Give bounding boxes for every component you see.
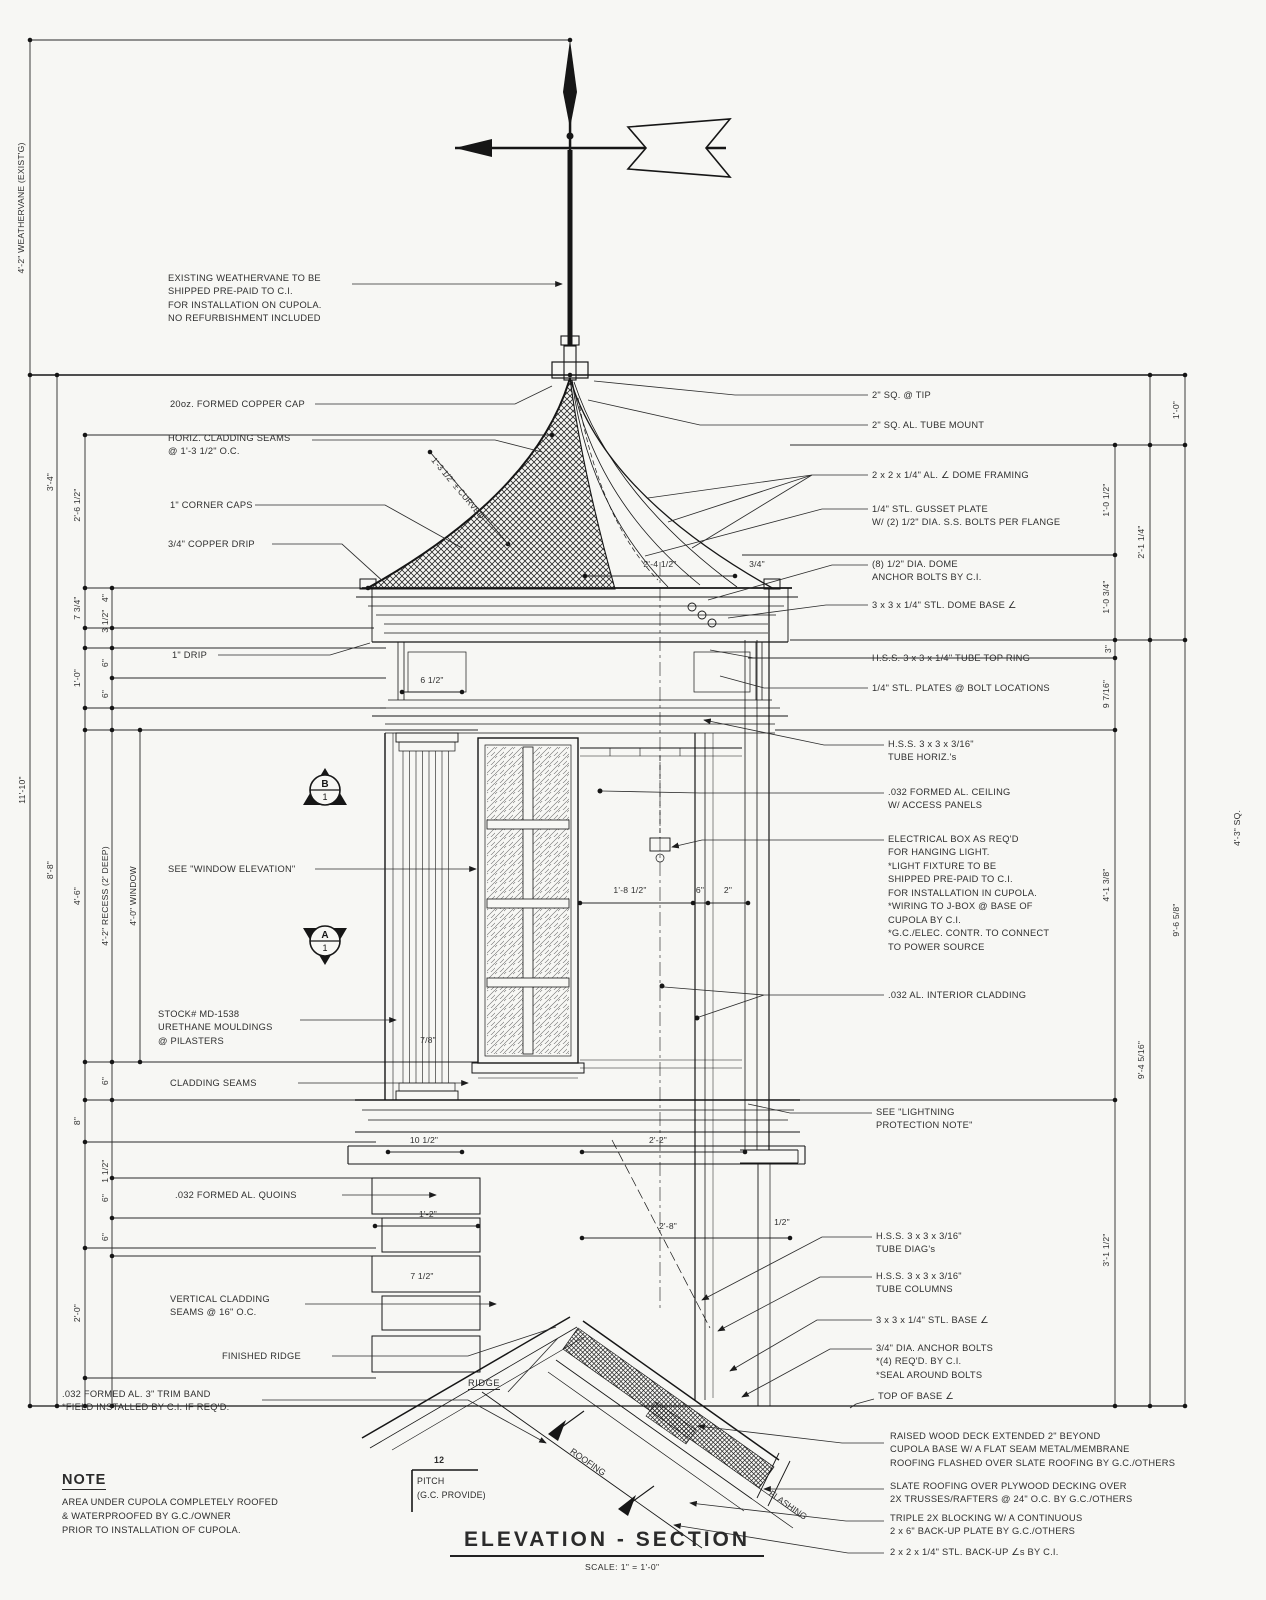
annotation-stl-base-angle: 3 x 3 x 1/4" STL. BASE ∠ [876, 1314, 989, 1327]
roof [362, 1317, 800, 1548]
weathervane-spear-icon [563, 40, 577, 128]
dim-column-width: 6" [696, 885, 704, 895]
dim-frieze-b: 6" [100, 690, 110, 698]
annotation-lightning-note: SEE "LIGHTNINGPROTECTION NOTE" [876, 1106, 973, 1133]
dim-top-ring-zone: 9 7/16" [1101, 680, 1111, 708]
annotation-tube-top-ring: H.S.S. 3 x 3 x 1/4" TUBE TOP RING [872, 652, 1030, 665]
dim-quoin-width: 1'-2" [419, 1209, 437, 1219]
drawing-sheet: B 1 A 1 EXISTING WEATHERVANE TO BESHIPPE… [0, 0, 1266, 1600]
dim-square-note: 4'-3" SQ. [1232, 810, 1242, 846]
annotation-finished-ridge: FINISHED RIDGE [222, 1350, 301, 1363]
dim-frieze: 1'-0" [72, 669, 82, 687]
dimension-dots [28, 38, 1188, 1409]
annotation-dome-base-angle: 3 x 3 x 1/4" STL. DOME BASE ∠ [872, 599, 1016, 612]
svg-text:B: B [321, 779, 328, 790]
dim-quoin-c: 6" [100, 1233, 110, 1241]
annotation-tube-horiz: H.S.S. 3 x 3 x 3/16"TUBE HORIZ.'s [888, 738, 974, 765]
drawing-linework: B 1 A 1 [0, 0, 1266, 1600]
dim-column-height: 9'-4 5/16" [1136, 1041, 1146, 1079]
dim-band-left: 10 1/2" [410, 1135, 438, 1145]
annotation-tube-diags: H.S.S. 3 x 3 x 3/16"TUBE DIAG's [876, 1230, 962, 1257]
annotation-weathervane-note: EXISTING WEATHERVANE TO BESHIPPED PRE-PA… [168, 272, 322, 326]
note-heading: NOTE [62, 1472, 106, 1490]
dim-ledge: 1/2" [774, 1217, 790, 1227]
annotation-interior-cladding: .032 AL. INTERIOR CLADDING [888, 989, 1026, 1002]
section-marker-b: B 1 [303, 768, 347, 805]
dim-quoin-b: 6" [100, 1194, 110, 1202]
dim-base-zone: 3'-1 1/2" [1101, 1233, 1111, 1266]
section-marker-a: A 1 [303, 926, 347, 965]
dim-cornice-a: 4" [100, 594, 110, 602]
dim-dome-base-width: 2'-4 1/2" [643, 559, 676, 569]
dim-overall-left: 11'-10" [17, 776, 27, 803]
dim-body-left: 8'-8" [45, 861, 55, 879]
dim-tip-zone: 1'-0" [1171, 401, 1181, 419]
annotation-copper-cap: 20oz. FORMED COPPER CAP [170, 398, 305, 411]
pitch-provide: (G.C. PROVIDE) [417, 1490, 486, 1500]
note-body: AREA UNDER CUPOLA COMPLETELY ROOFED& WAT… [62, 1496, 278, 1538]
dim-frieze-panel: 6 1/2" [420, 675, 443, 685]
svg-text:A: A [321, 930, 328, 941]
dim-wall-width: 2" [724, 885, 732, 895]
dim-anchor-zone: 1'-0 3/4" [1101, 580, 1111, 613]
dim-interior-width: 1'-8 1/2" [613, 885, 646, 895]
pitch-label: PITCH [417, 1476, 444, 1486]
annotation-triple-blocking: TRIPLE 2X BLOCKING W/ A CONTINUOUS2 x 6"… [890, 1512, 1082, 1539]
annotation-electrical-box: ELECTRICAL BOX AS REQ'DFOR HANGING LIGHT… [888, 833, 1049, 954]
annotation-anchor-bolts: 3/4" DIA. ANCHOR BOLTS*(4) REQ'D. BY C.I… [876, 1342, 993, 1382]
annotation-sq-tip: 2" SQ. @ TIP [872, 389, 931, 402]
annotation-corner-caps: 1" CORNER CAPS [170, 499, 253, 512]
drawing-scale: SCALE: 1" = 1'-0" [585, 1562, 660, 1572]
dim-cornice-b: 3 1/2" [100, 609, 110, 632]
dim-weathervane: 4'-2" WEATHERVANE (EXIST'G) [16, 142, 26, 273]
annotation-vertical-cladding-seams: VERTICAL CLADDINGSEAMS @ 16" O.C. [170, 1293, 270, 1320]
annotation-slate-roofing: SLATE ROOFING OVER PLYWOOD DECKING OVER2… [890, 1480, 1132, 1507]
pilaster-flutes [403, 751, 449, 1083]
dim-cap-to-eave: 2'-6 1/2" [72, 488, 82, 521]
annotation-trim-band: .032 FORMED AL. 3" TRIM BAND*FIELD INSTA… [62, 1388, 230, 1415]
dim-band-right: 2'-2" [649, 1135, 667, 1145]
dim-dome-height: 3'-4" [45, 473, 55, 491]
dim-quoin-width-b: 7 1/2" [410, 1271, 433, 1281]
annotation-quoins: .032 FORMED AL. QUOINS [175, 1189, 297, 1202]
annotation-raised-wood-deck: RAISED WOOD DECK EXTENDED 2" BEYONDCUPOL… [890, 1430, 1175, 1470]
annotation-stl-plates: 1/4" STL. PLATES @ BOLT LOCATIONS [872, 682, 1050, 695]
dim-interior-height: 4'-1 3/8" [1101, 868, 1111, 901]
annotation-dome-anchor-bolts: (8) 1/2" DIA. DOMEANCHOR BOLTS BY C.I. [872, 558, 982, 585]
annotation-dome-framing: 2 x 2 x 1/4" AL. ∠ DOME FRAMING [872, 469, 1029, 482]
dim-band: 8" [72, 1117, 82, 1125]
dim-dome-zone: 2'-1 1/4" [1136, 525, 1146, 558]
dim-overall-right: 9'-6 5/8" [1171, 903, 1181, 936]
annotation-al-ceiling: .032 FORMED AL. CEILINGW/ ACCESS PANELS [888, 786, 1011, 813]
dim-window-height: 4'-0" WINDOW [128, 866, 138, 926]
weathervane [455, 40, 730, 380]
annotation-tube-mount: 2" SQ. AL. TUBE MOUNT [872, 419, 984, 432]
annotation-window-elevation: SEE "WINDOW ELEVATION" [168, 863, 295, 876]
pitch-rise: 12 [434, 1455, 444, 1465]
annotation-cladding-seams: CLADDING SEAMS [170, 1077, 257, 1090]
dim-sill: 6" [100, 1077, 110, 1085]
annotation-urethane-mouldings: STOCK# MD-1538URETHANE MOULDINGS@ PILAST… [158, 1008, 273, 1048]
annotation-backup-angles: 2 x 2 x 1/4" STL. BACK-UP ∠s BY C.I. [890, 1546, 1059, 1559]
dim-dome-framing: 1'-0 1/2" [1101, 483, 1111, 516]
svg-text:1: 1 [322, 943, 327, 953]
annotation-horiz-cladding-seams: HORIZ. CLADDING SEAMS@ 1'-3 1/2" O.C. [168, 432, 291, 459]
dim-pilaster-base: 7/8" [420, 1035, 436, 1045]
annotation-gusset-plate: 1/4" STL. GUSSET PLATEW/ (2) 1/2" DIA. S… [872, 503, 1060, 530]
dim-ring: 3" [1103, 645, 1113, 653]
dim-dome-base-edge: 3/4" [749, 559, 765, 569]
dim-quoin-a: 1 1/2" [100, 1159, 110, 1182]
annotation-tube-columns: H.S.S. 3 x 3 x 3/16"TUBE COLUMNS [876, 1270, 962, 1297]
dome-section-hatch [366, 378, 615, 589]
dim-recess: 4'-2" RECESS (2' DEEP) [100, 846, 110, 946]
dim-base-height: 2'-0" [72, 1304, 82, 1322]
annotation-top-of-base-angle: TOP OF BASE ∠ [878, 1390, 954, 1403]
drawing-title: ELEVATION - SECTION [450, 1528, 764, 1557]
dim-body-height: 4'-6" [72, 887, 82, 905]
ridge-label: RIDGE [468, 1378, 500, 1390]
svg-text:1: 1 [322, 792, 327, 802]
dim-frieze-a: 6" [100, 659, 110, 667]
weathervane-arrowhead-icon [455, 139, 492, 157]
annotation-copper-drip: 3/4" COPPER DRIP [168, 538, 255, 551]
dim-cornice: 7 3/4" [72, 596, 82, 619]
annotation-one-inch-drip: 1" DRIP [172, 649, 207, 662]
dim-base-width: 2'-8" [659, 1221, 677, 1231]
